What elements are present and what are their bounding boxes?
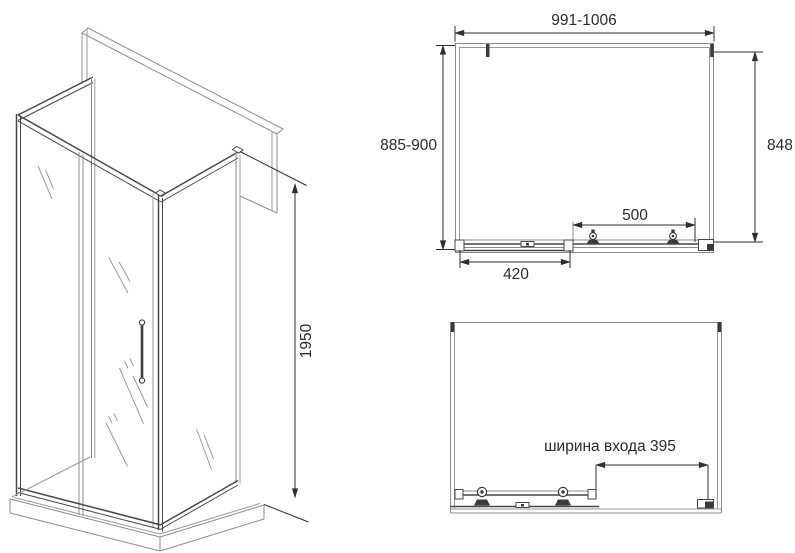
- glass-shine-marks: [197, 429, 214, 470]
- height-dimension-label: 1950: [298, 323, 315, 358]
- fixed-segment-dimension-label: 420: [503, 266, 529, 283]
- technical-drawing-canvas: 1950: [0, 0, 795, 553]
- shower-tray: [10, 457, 264, 551]
- door-handle: [139, 320, 144, 383]
- right-return-panel: [161, 147, 243, 530]
- door-opening-dimension-label: 500: [622, 207, 648, 224]
- back-panel: [82, 28, 283, 213]
- side-panel-dimension-label: 848: [767, 137, 793, 154]
- plan-frame: [451, 322, 722, 513]
- roller-glyph: [474, 487, 490, 505]
- side-panel-dimension: 848: [714, 52, 793, 242]
- fixed-segment-dimension: 420: [460, 250, 570, 283]
- glass-shine-marks: [38, 166, 54, 199]
- sliding-door-assembly: [450, 487, 714, 508]
- entry-width-dimension: ширина входа 395: [544, 438, 708, 499]
- entry-width-label: ширина входа 395: [544, 438, 676, 455]
- width-dimension: 991-1006: [455, 12, 714, 42]
- depth-dimension: 885-900: [380, 46, 455, 250]
- top-plan-view: 991-1006 885-900 848 500 420: [380, 0, 795, 300]
- bottom-plan-view: ширина входа 395: [380, 300, 795, 553]
- roller-glyph: [667, 230, 680, 244]
- door-rail-assembly: [455, 222, 714, 254]
- roller-glyph: [555, 487, 571, 505]
- depth-dimension-label: 885-900: [380, 137, 437, 154]
- width-dimension-label: 991-1006: [551, 12, 617, 29]
- plan-frame: [456, 44, 714, 253]
- isometric-view: 1950: [0, 0, 380, 553]
- roller-glyph: [587, 230, 600, 244]
